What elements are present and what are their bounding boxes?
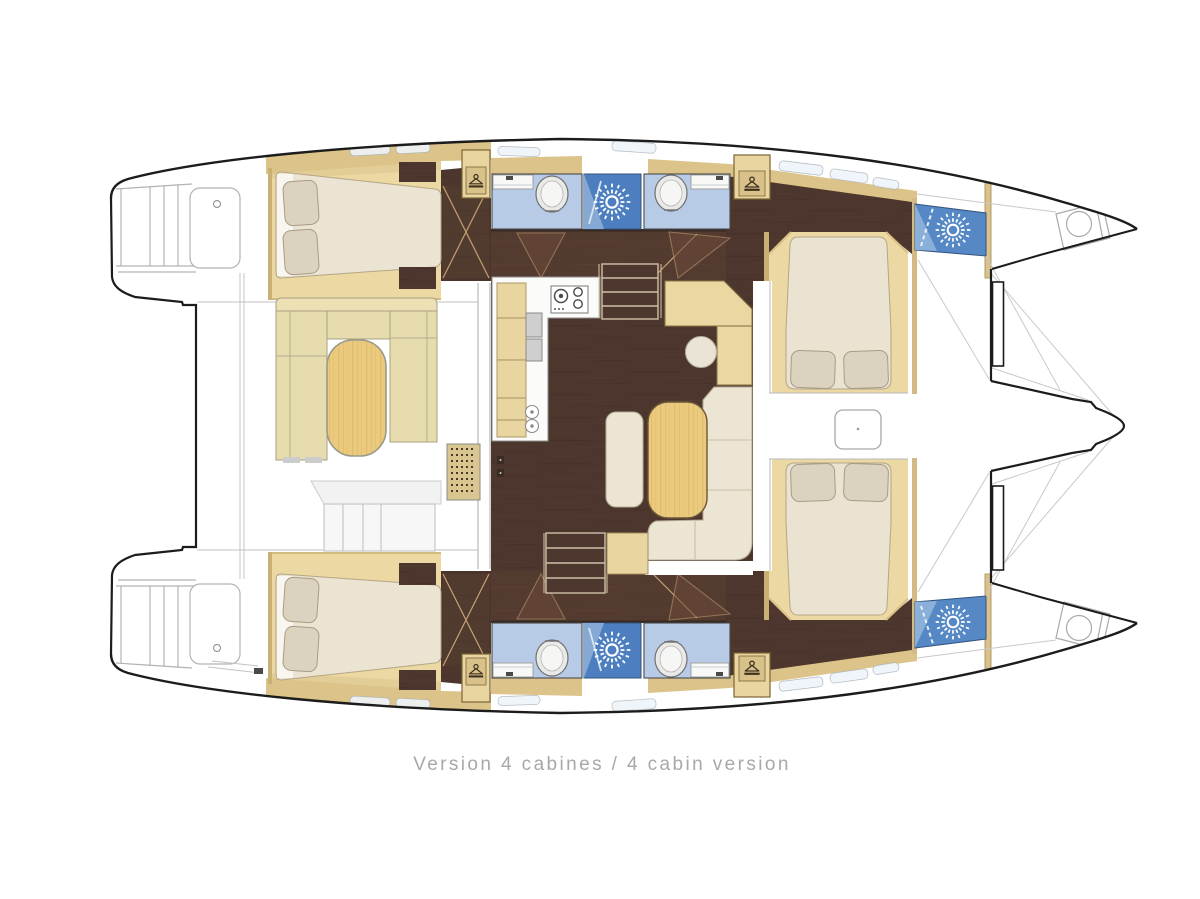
svg-text:Version 4 cabines / 4 cabin ve: Version 4 cabines / 4 cabin version — [413, 754, 791, 775]
